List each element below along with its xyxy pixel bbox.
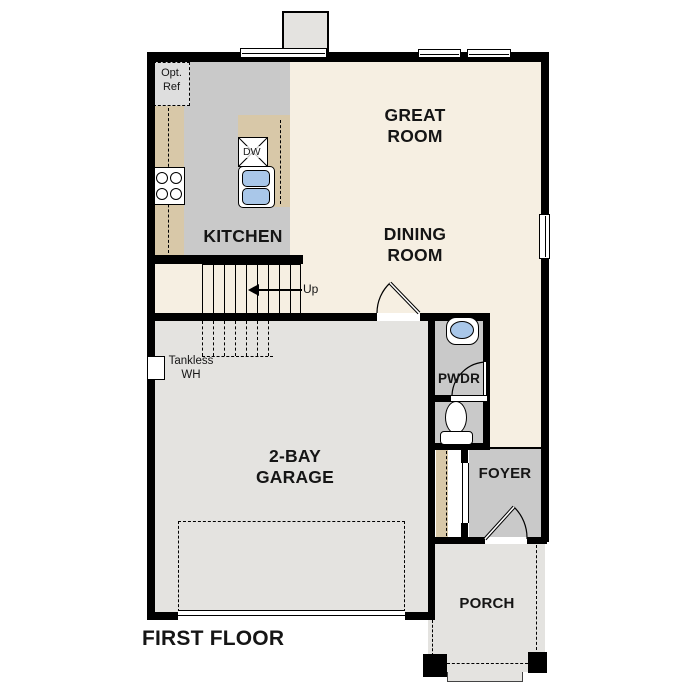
powder-room-label: PWDR [434, 371, 484, 387]
wall-right [541, 52, 549, 542]
foyer-label: FOYER [473, 465, 537, 483]
wall-garage-bottom-right [405, 612, 435, 620]
wall-left [147, 52, 155, 620]
wall-garage-top [147, 313, 377, 321]
tankless-water-heater-label: Tankless WH [163, 354, 219, 383]
wall-garage-bottom-left [147, 612, 178, 620]
garage-label: 2-BAY GARAGE [235, 446, 355, 489]
closet-rod-dashline [446, 451, 447, 536]
chimney-bump-out [282, 11, 329, 53]
foyer-dining-separation-line [488, 447, 541, 449]
floor-plan-title: FIRST FLOOR [142, 626, 362, 652]
stairs-up-arrow [258, 289, 302, 291]
kitchen-sink [238, 166, 275, 208]
dining-room-label: DINING ROOM [355, 224, 475, 267]
porch-edge-dashed-bottom [447, 663, 528, 664]
garage-door [178, 610, 405, 616]
wall-kitchen-bottom [147, 255, 303, 264]
dining-door-swing [376, 281, 420, 315]
porch-edge-dashed-right [536, 545, 537, 650]
wall-garage-right [428, 313, 435, 620]
island-dashline [280, 120, 281, 204]
porch-label: PORCH [453, 595, 521, 613]
toilet-bowl [445, 401, 467, 434]
garage-door-clearance-dashed [178, 521, 405, 612]
porch-step [447, 672, 523, 682]
porch-post-right [528, 652, 547, 673]
range-cooktop [152, 167, 185, 205]
front-door-swing [483, 505, 529, 541]
island-counter-top [238, 115, 290, 137]
wall-foyer-bottom-left [428, 537, 485, 544]
dining-foyer-passage-floor [490, 313, 541, 449]
powder-sink [446, 317, 479, 345]
stairs-up-arrowhead-icon [248, 284, 259, 296]
dishwasher: DW [238, 137, 268, 167]
porch-post-left [423, 654, 447, 677]
great-room-window-right [539, 214, 550, 259]
great-room-window-2 [467, 49, 511, 58]
stairs-up-label: Up [303, 282, 318, 297]
optional-refrigerator-label: Opt. Ref [153, 67, 190, 95]
kitchen-window [240, 48, 327, 58]
wall-closet-jamb-top [461, 450, 468, 463]
kitchen-label: KITCHEN [193, 226, 293, 247]
wall-foyer-bottom-right [527, 537, 547, 544]
toilet-tank [440, 431, 473, 445]
stairs-lower-dashed [202, 321, 273, 357]
floor-plan: Opt. Ref DW Up [0, 0, 687, 687]
great-room-window-1 [418, 49, 461, 58]
great-room-label: GREAT ROOM [355, 105, 475, 148]
closet-door [462, 463, 469, 523]
porch-garage-dashline [432, 620, 433, 656]
wall-pwdr-mid-stub [435, 395, 451, 402]
dishwasher-label: DW [242, 146, 262, 158]
